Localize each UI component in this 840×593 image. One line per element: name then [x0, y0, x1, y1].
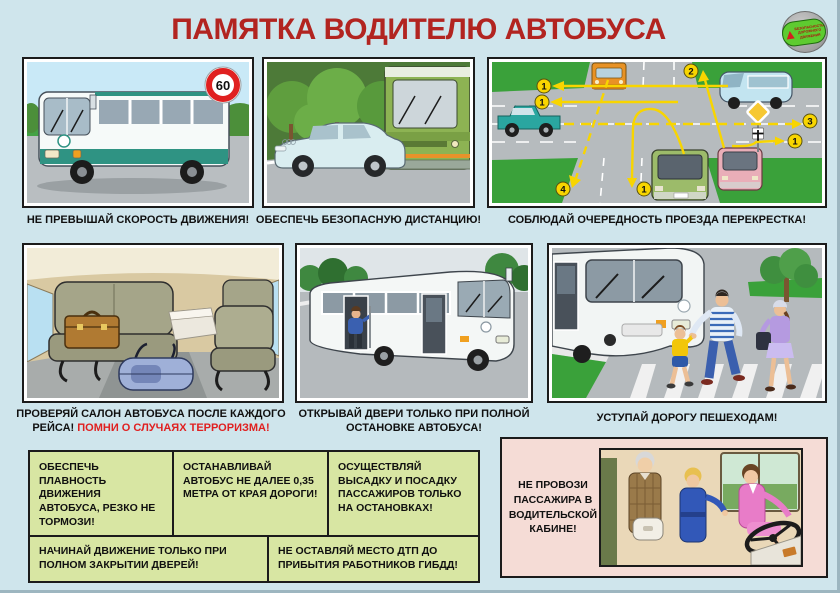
speed-panel-illustration: 60 [27, 62, 249, 203]
caption-intersection: СОБЛЮДАЙ ОЧЕРЕДНОСТЬ ПРОЕЗДА ПЕРЕКРЕСТКА… [487, 213, 827, 227]
bystander-figure [601, 458, 617, 565]
panel-intersection-priority: 1 1 2 3 1 4 1 [487, 57, 827, 208]
bus-driver-memo-poster: ПАМЯТКА ВОДИТЕЛЮ АВТОБУСА БЕЗОПАСНОСТЬ Д… [0, 0, 840, 593]
caption-salon: ПРОВЕРЯЙ САЛОН АВТОБУСА ПОСЛЕ КАЖДОГО РЕ… [10, 407, 292, 436]
caption-pedestrians: УСТУПАЙ ДОРОГУ ПЕШЕХОДАМ! [547, 411, 827, 425]
briefcase [65, 312, 119, 348]
rules-row-1: ОБЕСПЕЧЬ ПЛАВНОСТЬ ДВИЖЕНИЯ АВТОБУСА, РЕ… [30, 452, 478, 535]
svg-text:1: 1 [539, 98, 545, 109]
rule-smooth-driving: ОБЕСПЕЧЬ ПЛАВНОСТЬ ДВИЖЕНИЯ АВТОБУСА, РЕ… [30, 452, 174, 535]
pink-van [718, 148, 762, 190]
cab-scene-illustration [601, 450, 801, 565]
green-van [652, 150, 708, 200]
rule-stop-distance: ОСТАНАВЛИВАЙ АВТОБУС НЕ ДАЛЕЕ 0,35 МЕТРА… [174, 452, 329, 535]
caption-speed: НЕ ПРЕВЫШАЙ СКОРОСТЬ ДВИЖЕНИЯ! [22, 213, 254, 227]
svg-text:1: 1 [541, 82, 547, 93]
panel-doors-stop [295, 243, 533, 403]
logo-text: БЕЗОПАСНОСТЬ ДОРОЖНОГО ДВИЖЕНИЯ [794, 24, 825, 40]
svg-text:60: 60 [216, 78, 230, 93]
page-title: ПАМЯТКА ВОДИТЕЛЮ АВТОБУСА [0, 13, 837, 47]
pedestrians-panel-illustration [552, 248, 822, 398]
svg-text:1: 1 [792, 137, 798, 148]
distance-panel-illustration [267, 62, 470, 203]
cab-rule-box: НЕ ПРОВОЗИ ПАССАЖИРА В ВОДИТЕЛЬСКОЙ КАБИ… [500, 437, 828, 578]
white-box [169, 308, 217, 340]
cab-illustration-frame [599, 448, 803, 567]
panel-safe-distance [262, 57, 475, 208]
rule-boarding-at-stops: ОСУЩЕСТВЛЯЙ ВЫСАДКУ И ПОСАДКУ ПАССАЖИРОВ… [329, 452, 478, 535]
rules-table: ОБЕСПЕЧЬ ПЛАВНОСТЬ ДВИЖЕНИЯ АВТОБУСА, РЕ… [28, 450, 480, 583]
svg-text:3: 3 [807, 117, 812, 128]
doors-panel-illustration [300, 248, 528, 398]
intersection-panel-illustration: 1 1 2 3 1 4 1 [492, 62, 822, 203]
speed-limit-sign: 60 [205, 67, 241, 103]
caption-doors: ОТКРЫВАЙ ДВЕРИ ТОЛЬКО ПРИ ПОЛНОЙ ОСТАНОВ… [295, 407, 533, 436]
warning-triangle-icon [786, 30, 795, 39]
panel-speed-limit: 60 [22, 57, 254, 208]
salon-panel-illustration [27, 248, 279, 398]
panel-pedestrians [547, 243, 827, 403]
rule-accident-scene: НЕ ОСТАВЛЯЙ МЕСТО ДТП ДО ПРИБЫТИЯ РАБОТН… [269, 537, 478, 581]
cab-rule-text: НЕ ПРОВОЗИ ПАССАЖИРА В ВОДИТЕЛЬСКОЙ КАБИ… [508, 439, 598, 576]
rule-doors-closed: НАЧИНАЙ ДВИЖЕНИЕ ТОЛЬКО ПРИ ПОЛНОМ ЗАКРЫ… [30, 537, 269, 581]
svg-text:1: 1 [641, 185, 647, 196]
svg-text:2: 2 [688, 67, 693, 78]
terrorism-warning-text: ПОМНИ О СЛУЧАЯХ ТЕРРОРИЗМА! [77, 422, 269, 434]
road-safety-logo: БЕЗОПАСНОСТЬ ДОРОЖНОГО ДВИЖЕНИЯ [782, 11, 828, 53]
svg-text:4: 4 [560, 185, 566, 196]
caption-distance: ОБЕСПЕЧЬ БЕЗОПАСНУЮ ДИСТАНЦИЮ! [254, 213, 483, 227]
bus-illustration [310, 268, 514, 361]
panel-salon-check [22, 243, 284, 403]
rules-row-2: НАЧИНАЙ ДВИЖЕНИЕ ТОЛЬКО ПРИ ПОЛНОМ ЗАКРЫ… [30, 535, 478, 581]
